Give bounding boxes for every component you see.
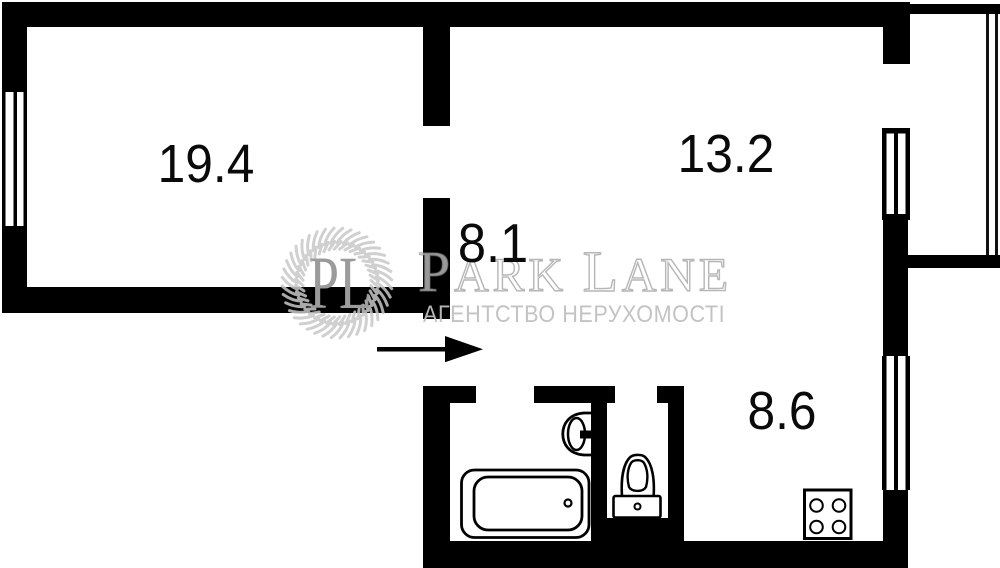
svg-text:АГЕНТСТВО НЕРУХОМОСТІ: АГЕНТСТВО НЕРУХОМОСТІ [423, 300, 725, 327]
svg-text:8.1: 8.1 [458, 213, 528, 274]
svg-text:13.2: 13.2 [678, 123, 775, 183]
svg-text:19.4: 19.4 [158, 133, 255, 193]
svg-text:8.6: 8.6 [747, 380, 816, 440]
svg-text:PL: PL [309, 243, 372, 326]
